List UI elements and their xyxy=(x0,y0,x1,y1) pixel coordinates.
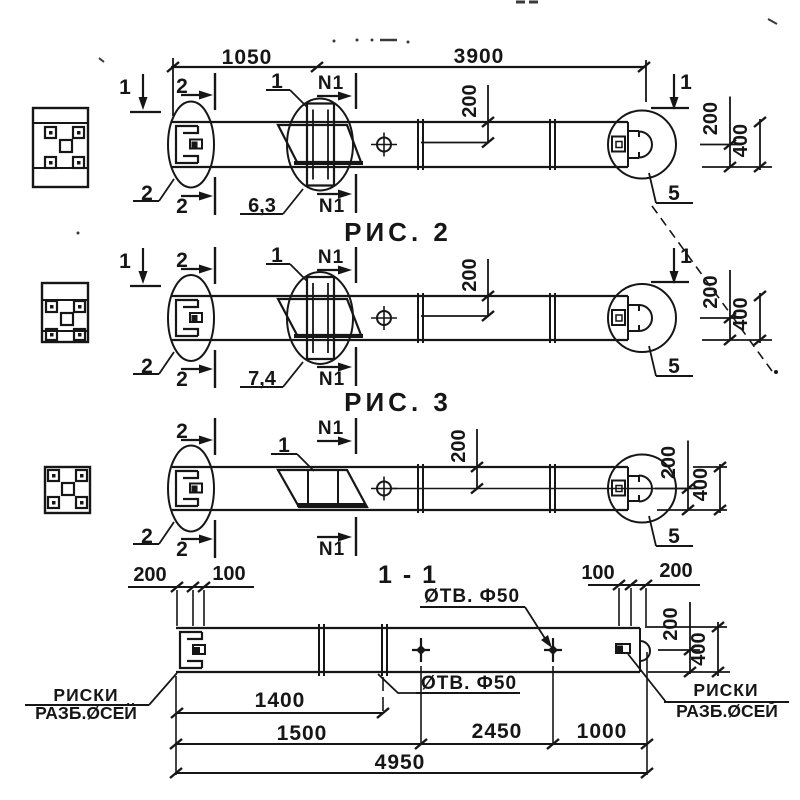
detail2-leader xyxy=(159,352,174,374)
section-1-1-view: 200100100200200400ØТВ. Ф50ØТВ. Ф50РИСКИР… xyxy=(25,560,789,778)
arrow-right-icon xyxy=(199,91,213,100)
dim-label-400: 400 xyxy=(730,297,752,330)
right-end-plate-fill xyxy=(617,646,623,653)
corner-bar-dot xyxy=(49,131,53,135)
leader-arrowhead-icon xyxy=(541,635,552,648)
detail2-leader xyxy=(159,179,174,201)
right-bracket-arc xyxy=(639,305,652,331)
holes-callout-bottom: ØТВ. Ф50 xyxy=(421,673,517,694)
cross-section-1 xyxy=(33,108,88,187)
right-bracket-arc xyxy=(640,641,650,661)
technical-drawing-sheet: 20040020011222N1N156,3110503900200400200… xyxy=(0,0,800,800)
arrow-right-icon xyxy=(338,437,352,446)
dim-label-200: 200 xyxy=(700,102,722,135)
middle-detail-oval xyxy=(287,272,353,364)
gusset-parallelogram xyxy=(278,470,367,507)
detail1-leader xyxy=(297,454,314,471)
dim-label-edge-100: 100 xyxy=(212,563,245,585)
dim-label-400: 400 xyxy=(688,632,710,665)
scan-artifact-dot xyxy=(407,41,410,44)
detail5-label: 5 xyxy=(668,355,680,378)
cut2-label-bottom: 2 xyxy=(176,195,188,218)
gusset-parallelogram xyxy=(278,299,361,335)
weld-leader xyxy=(283,189,303,214)
right-detail-circle xyxy=(608,111,676,179)
cut1-label-right: 1 xyxy=(680,71,692,94)
gusset-parallelogram xyxy=(278,125,361,162)
corner-bar-dot xyxy=(78,333,82,337)
n1-label-bottom: N1 xyxy=(319,369,345,390)
dim-label-200: 200 xyxy=(660,607,682,640)
dim-label-1000: 1000 xyxy=(577,720,628,743)
dim-label-400: 400 xyxy=(690,468,712,501)
detail5-label: 5 xyxy=(668,525,680,548)
dim-label-1500: 1500 xyxy=(277,722,328,745)
dim-label-2450: 2450 xyxy=(472,720,523,743)
cut2-label-bottom: 2 xyxy=(176,368,188,391)
right-end-plate-inner xyxy=(616,142,622,148)
dim-label-3900: 3900 xyxy=(454,45,505,68)
dim-label-400: 400 xyxy=(730,124,752,157)
cross-section-3 xyxy=(45,467,90,513)
arrow-right-icon xyxy=(199,365,213,374)
figure-titles: РИС. 2РИС. 31 - 1 xyxy=(344,217,452,589)
cut1-label-left: 1 xyxy=(119,76,131,99)
fig3-title: РИС. 3 xyxy=(344,387,452,417)
dim-label-mid-200: 200 xyxy=(459,84,481,117)
detail1-leader xyxy=(290,264,307,281)
corner-bar-dot xyxy=(77,161,81,165)
arrow-right-icon xyxy=(199,265,213,274)
riski-label-left-2: РАЗБ.ØСЕЙ xyxy=(35,702,137,723)
arrow-down-icon xyxy=(139,271,148,284)
arrow-right-icon xyxy=(338,92,352,101)
corner-bar-dot xyxy=(52,474,56,478)
right-end-plate-inner xyxy=(616,315,622,321)
figure-row-3: 200400200222N1N151 xyxy=(133,418,727,561)
riski-label-right-1: РИСКИ xyxy=(693,680,758,700)
riski-leader-left xyxy=(149,673,177,705)
figure-row-2: 20040020011222N1N157,41 xyxy=(119,244,772,391)
n1-label-top: N1 xyxy=(318,247,344,268)
left-end-plate-fill xyxy=(192,142,198,148)
left-end-plate-fill xyxy=(194,647,200,653)
dim-label-4950: 4950 xyxy=(375,751,426,774)
arrow-right-icon xyxy=(199,535,213,544)
center-duct-square xyxy=(60,140,72,152)
arrow-right-icon xyxy=(199,436,213,445)
n1-label-top: N1 xyxy=(318,73,344,94)
reference-dot xyxy=(774,370,778,374)
dim-label-mid-200: 200 xyxy=(448,429,470,462)
right-end-plate xyxy=(612,310,625,325)
arrow-right-icon xyxy=(199,192,213,201)
dim-label-1400: 1400 xyxy=(255,689,306,712)
middle-detail-oval xyxy=(287,99,353,191)
right-detail-circle xyxy=(608,284,676,352)
scan-artifact-dot xyxy=(356,39,359,42)
n1-label-top: N1 xyxy=(318,418,344,439)
arrow-right-icon xyxy=(338,266,352,275)
dim-label-edge-100: 100 xyxy=(581,562,614,584)
right-end-plate xyxy=(612,137,625,152)
corner-bar-dot xyxy=(49,161,53,165)
column-drawing-canvas: 20040020011222N1N156,3110503900200400200… xyxy=(0,0,800,800)
hole-diamond-icon xyxy=(416,645,426,655)
riski-label-right-2: РАЗБ.ØСЕЙ xyxy=(676,700,778,721)
hole-diamond-icon xyxy=(548,645,558,655)
n1-label-bottom: N1 xyxy=(319,539,345,560)
scan-artifact-dot xyxy=(371,39,374,42)
detail5-label: 5 xyxy=(668,182,680,205)
corner-bar-dot xyxy=(50,305,54,309)
holes-callout-top: ØТВ. Ф50 xyxy=(424,586,520,607)
fig2-title: РИС. 2 xyxy=(344,217,452,247)
corner-bar-dot xyxy=(78,305,82,309)
arrow-down-icon xyxy=(139,97,148,110)
dim-label-mid-200: 200 xyxy=(459,258,481,291)
left-end-plate-fill xyxy=(192,486,198,492)
detail2-leader xyxy=(159,522,174,544)
holes-callout-leader xyxy=(525,607,546,640)
figure-row-1: 20040020011222N1N156,3110503900 xyxy=(119,45,772,218)
riski-label-left-1: РИСКИ xyxy=(53,685,118,705)
corner-bar-dot xyxy=(80,501,84,505)
corner-bar-dot xyxy=(52,501,56,505)
section-title: 1 - 1 xyxy=(378,561,438,589)
detail1-leader xyxy=(290,90,307,107)
dim-label-1050: 1050 xyxy=(222,46,273,69)
dim-label-edge-200: 200 xyxy=(659,560,692,582)
cut1-label-left: 1 xyxy=(119,250,131,273)
left-end-plate-fill xyxy=(192,315,198,321)
scan-artifact-dash xyxy=(768,19,777,24)
cross-sections xyxy=(33,108,90,513)
dim-label-200: 200 xyxy=(700,275,722,308)
corner-bar-dot xyxy=(50,333,54,337)
center-duct-square xyxy=(61,313,73,325)
section-outline xyxy=(45,467,90,513)
dim-label-edge-200: 200 xyxy=(133,564,166,586)
scan-artifact-dot xyxy=(333,40,336,43)
corner-bar-dot xyxy=(80,474,84,478)
weld-leader xyxy=(283,362,303,387)
right-bracket-arc xyxy=(639,132,652,158)
scan-artifact-dash xyxy=(99,58,104,62)
n1-label-bottom: N1 xyxy=(319,196,345,217)
dim-label-200: 200 xyxy=(658,446,680,479)
center-duct-square xyxy=(62,483,74,495)
corner-bar-dot xyxy=(77,131,81,135)
cross-section-2 xyxy=(42,283,88,342)
cut2-label-bottom: 2 xyxy=(176,538,188,561)
scan-artifact-dot xyxy=(77,232,80,235)
